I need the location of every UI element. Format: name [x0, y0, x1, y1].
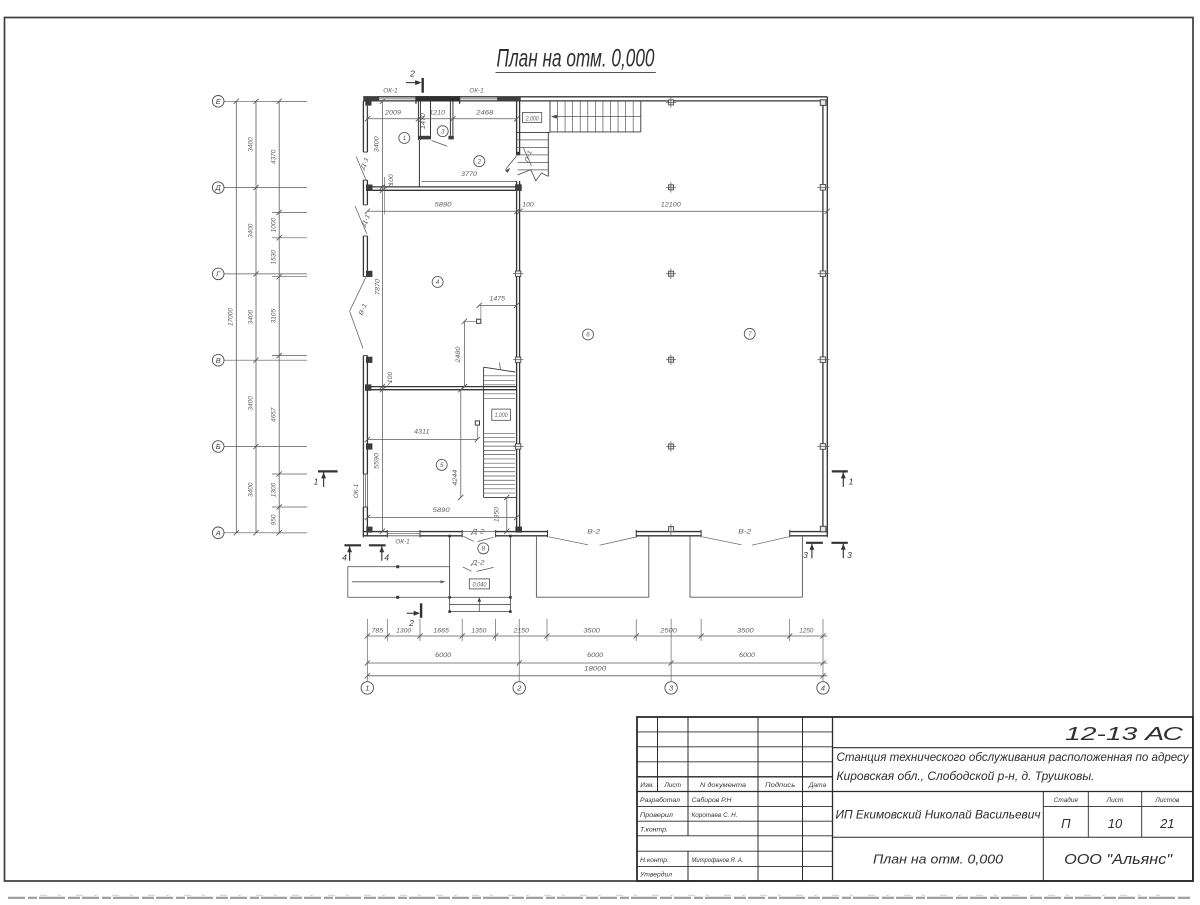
svg-text:1: 1	[365, 684, 369, 693]
svg-text:4: 4	[384, 553, 389, 563]
svg-text:Проверил: Проверил	[640, 812, 673, 819]
svg-text:12-13 АС: 12-13 АС	[1065, 724, 1185, 744]
svg-text:В: В	[216, 356, 221, 365]
svg-text:100: 100	[522, 202, 534, 208]
svg-text:7: 7	[748, 331, 752, 338]
svg-text:4: 4	[436, 279, 440, 286]
svg-text:Утвердил: Утвердил	[639, 871, 672, 879]
svg-text:950: 950	[270, 514, 277, 525]
svg-text:ОК-1: ОК-1	[383, 88, 398, 95]
svg-text:Коротаев С. Н.: Коротаев С. Н.	[692, 812, 738, 819]
svg-text:0,040: 0,040	[473, 582, 488, 589]
svg-text:3: 3	[847, 550, 852, 560]
svg-text:5890: 5890	[433, 508, 451, 514]
svg-text:Изм.: Изм.	[640, 782, 654, 789]
svg-text:4657: 4657	[270, 407, 277, 422]
svg-text:1: 1	[314, 477, 319, 487]
svg-text:21: 21	[1159, 816, 1174, 831]
svg-text:6000: 6000	[435, 653, 452, 659]
svg-text:Разработал: Разработал	[640, 796, 680, 804]
svg-text:Стадия: Стадия	[1054, 796, 1079, 804]
svg-text:3400: 3400	[247, 309, 254, 324]
svg-text:5: 5	[440, 462, 444, 469]
svg-text:3400: 3400	[247, 137, 254, 152]
svg-text:Станция технического обслужива: Станция технического обслуживания распол…	[837, 750, 1190, 764]
svg-text:3400: 3400	[247, 482, 254, 497]
svg-text:1: 1	[849, 477, 854, 487]
svg-text:Кировская обл., Слободской р-н: Кировская обл., Слободской р-н, д. Трушк…	[837, 769, 1095, 783]
svg-text:ОК-1: ОК-1	[395, 539, 410, 546]
svg-text:7870: 7870	[375, 278, 381, 295]
svg-text:785: 785	[372, 629, 384, 635]
svg-text:В-2: В-2	[738, 530, 752, 536]
svg-text:ОК-1: ОК-1	[353, 484, 360, 499]
svg-text:2: 2	[409, 68, 415, 78]
svg-text:1000: 1000	[270, 217, 277, 232]
svg-text:3500: 3500	[583, 629, 600, 635]
svg-text:10: 10	[1108, 816, 1123, 831]
svg-text:1350: 1350	[495, 506, 501, 522]
svg-text:1250: 1250	[799, 629, 814, 635]
svg-text:1300: 1300	[270, 482, 277, 497]
svg-text:100: 100	[389, 173, 395, 185]
svg-text:3500: 3500	[737, 629, 754, 635]
svg-text:6000: 6000	[587, 653, 604, 659]
svg-text:Т.контр.: Т.контр.	[640, 827, 668, 834]
svg-text:2500: 2500	[659, 629, 678, 635]
svg-text:3105: 3105	[270, 308, 277, 323]
svg-text:8: 8	[482, 546, 486, 553]
svg-text:Подпись: Подпись	[765, 781, 796, 789]
svg-text:12100: 12100	[661, 202, 682, 208]
svg-text:1300: 1300	[396, 629, 412, 635]
svg-text:1470: 1470	[421, 112, 427, 129]
svg-text:П: П	[1061, 816, 1071, 831]
svg-text:Лист: Лист	[663, 782, 681, 789]
svg-text:1,000: 1,000	[495, 412, 508, 419]
svg-text:План на отм. 0,000: План на отм. 0,000	[873, 852, 1004, 867]
svg-text:3: 3	[441, 128, 445, 135]
svg-text:18000: 18000	[584, 667, 607, 673]
svg-text:4311: 4311	[414, 429, 430, 435]
svg-text:3: 3	[803, 550, 808, 560]
svg-text:План на отм. 0,000: План на отм. 0,000	[497, 45, 655, 73]
svg-text:5590: 5590	[375, 452, 381, 469]
svg-text:А: А	[215, 528, 221, 537]
svg-text:5890: 5890	[435, 202, 453, 208]
svg-text:ИП Екимовский Николай Васильев: ИП Екимовский Николай Васильевич	[836, 808, 1041, 822]
svg-text:1530: 1530	[270, 250, 277, 265]
svg-text:В-2: В-2	[587, 530, 601, 536]
svg-text:2009: 2009	[384, 111, 402, 117]
svg-text:6: 6	[586, 332, 590, 339]
svg-text:3400: 3400	[375, 136, 381, 153]
svg-text:2,000: 2,000	[525, 115, 539, 122]
svg-text:1350: 1350	[471, 629, 487, 635]
svg-text:6000: 6000	[739, 653, 756, 659]
svg-text:Дата: Дата	[808, 782, 827, 789]
svg-text:2480: 2480	[456, 346, 462, 364]
svg-text:1475: 1475	[490, 297, 506, 303]
svg-text:1210: 1210	[430, 111, 446, 117]
svg-text:4370: 4370	[270, 149, 277, 164]
svg-text:4244: 4244	[453, 469, 459, 486]
svg-text:2: 2	[516, 684, 522, 693]
svg-text:Д-2: Д-2	[470, 529, 485, 535]
svg-text:17000: 17000	[228, 308, 235, 326]
svg-text:2: 2	[408, 618, 414, 628]
svg-text:Д-2: Д-2	[470, 561, 485, 567]
svg-text:4: 4	[342, 553, 347, 563]
svg-text:1: 1	[403, 135, 406, 142]
svg-text:1665: 1665	[433, 629, 449, 635]
svg-text:Лист: Лист	[1106, 797, 1124, 804]
svg-text:Д: Д	[215, 183, 222, 192]
svg-text:Сабиров Р.Н: Сабиров Р.Н	[692, 796, 732, 804]
svg-text:ООО "Альянс": ООО "Альянс"	[1064, 852, 1173, 868]
svg-text:Листов: Листов	[1154, 797, 1180, 804]
svg-text:Б: Б	[216, 442, 221, 451]
svg-text:2150: 2150	[512, 629, 529, 635]
svg-text:3400: 3400	[247, 223, 254, 238]
svg-text:2: 2	[477, 158, 482, 165]
svg-text:N документа: N документа	[700, 781, 746, 789]
svg-text:3770: 3770	[461, 172, 478, 178]
svg-text:4: 4	[821, 684, 825, 693]
svg-text:Митрофанов Я. А.: Митрофанов Я. А.	[692, 857, 744, 864]
svg-text:ОК-1: ОК-1	[469, 88, 484, 95]
svg-text:2468: 2468	[475, 111, 494, 117]
svg-text:Н.контр.: Н.контр.	[640, 857, 669, 864]
svg-text:3400: 3400	[247, 396, 254, 411]
